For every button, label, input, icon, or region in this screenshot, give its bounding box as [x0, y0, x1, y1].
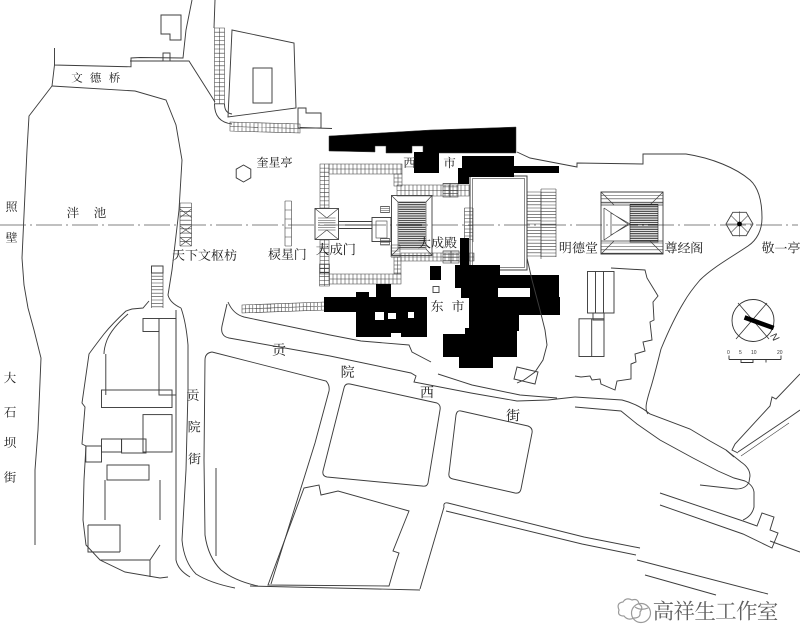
svg-text:10: 10 [751, 350, 757, 356]
svg-text:20: 20 [777, 350, 783, 356]
svg-text:0: 0 [727, 350, 730, 356]
svg-text:5: 5 [739, 350, 742, 356]
